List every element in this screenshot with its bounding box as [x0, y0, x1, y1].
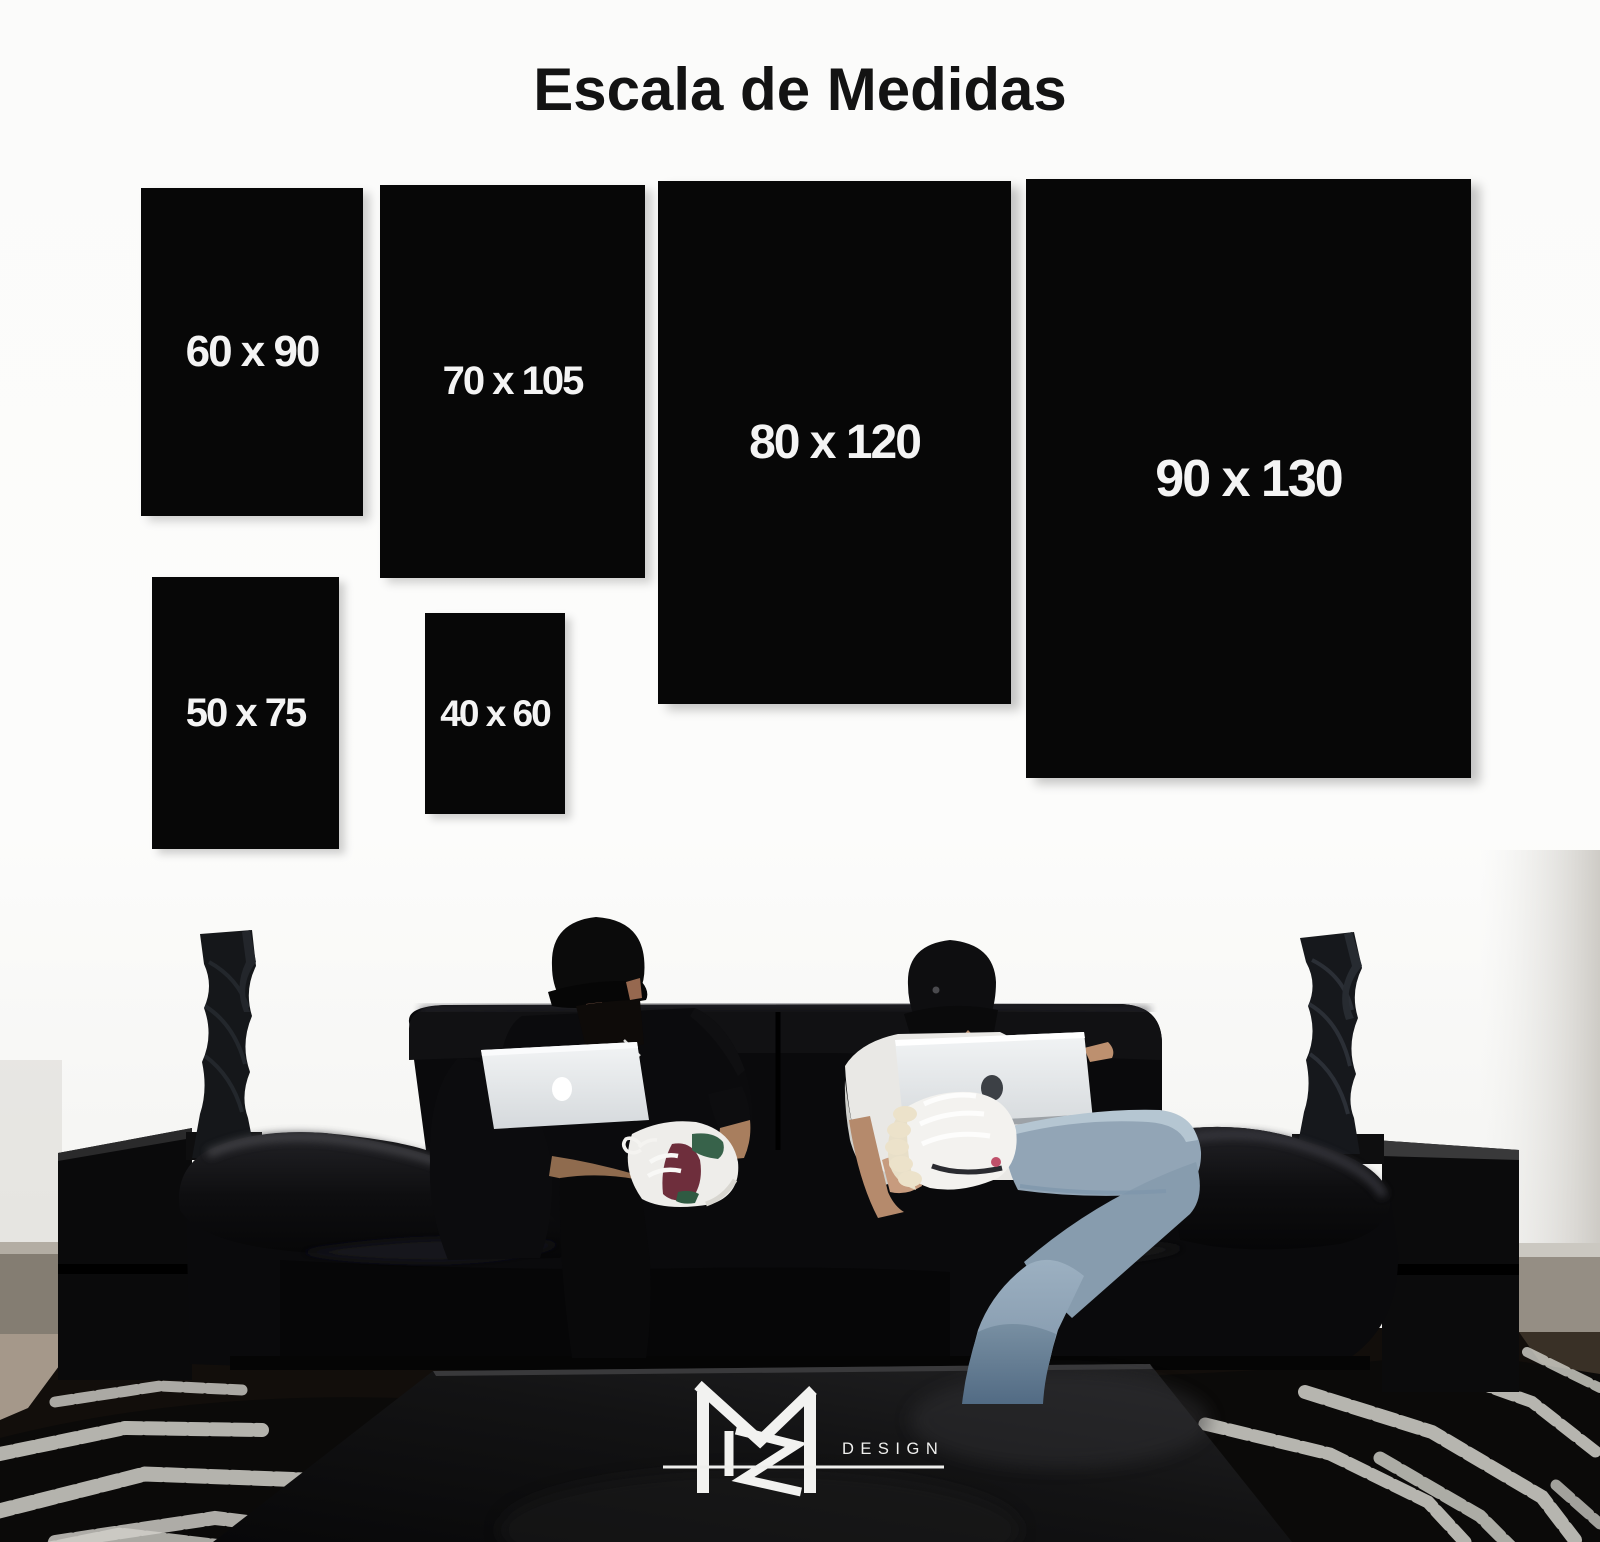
svg-text:DESIGN: DESIGN [842, 1440, 944, 1458]
